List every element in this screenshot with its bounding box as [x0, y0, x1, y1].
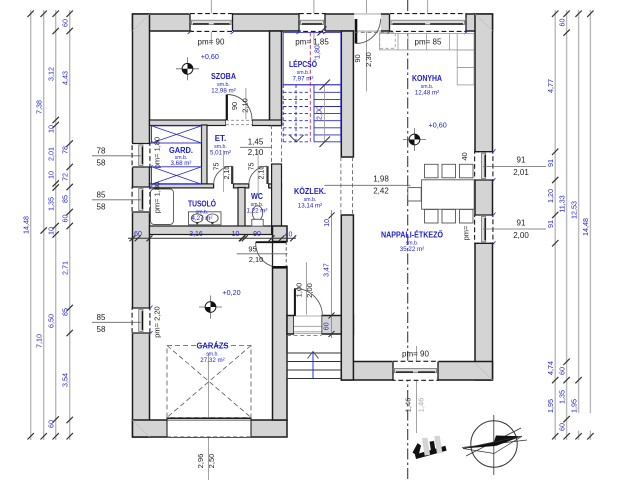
svg-text:2,01: 2,01: [513, 168, 529, 177]
svg-text:2,00: 2,00: [305, 283, 314, 298]
svg-text:60: 60: [61, 19, 70, 27]
svg-text:pm= 90: pm= 90: [402, 350, 429, 359]
svg-text:TUSOLÓ: TUSOLÓ: [188, 200, 216, 209]
svg-text:60: 60: [134, 231, 142, 238]
svg-text:91: 91: [517, 219, 526, 228]
svg-text:2,10: 2,10: [241, 98, 250, 113]
svg-text:12,53: 12,53: [569, 201, 578, 219]
svg-text:10: 10: [47, 171, 56, 179]
svg-text:7,38: 7,38: [35, 100, 44, 114]
svg-text:pm= 90: pm= 90: [198, 38, 225, 47]
svg-text:10: 10: [47, 227, 56, 235]
svg-text:1,35: 1,35: [47, 197, 56, 211]
svg-text:4,77: 4,77: [546, 79, 555, 93]
svg-text:3,16: 3,16: [189, 231, 203, 238]
svg-text:pm= 1,80: pm= 1,80: [153, 137, 162, 168]
svg-text:75: 75: [214, 163, 221, 171]
svg-text:60: 60: [323, 322, 330, 330]
svg-text:NAPPALI-ÉTKEZŐ: NAPPALI-ÉTKEZŐ: [381, 231, 443, 240]
svg-text:+0,20: +0,20: [222, 288, 240, 297]
svg-text:3,47: 3,47: [323, 263, 330, 277]
svg-text:1,45: 1,45: [248, 137, 264, 146]
svg-text:4,43: 4,43: [61, 71, 70, 85]
svg-text:GARÁZS: GARÁZS: [197, 342, 230, 351]
svg-text:2,50: 2,50: [207, 454, 216, 469]
svg-text:2,00: 2,00: [315, 106, 324, 120]
svg-text:11,33: 11,33: [557, 195, 566, 212]
svg-text:91: 91: [546, 220, 555, 228]
svg-text:85: 85: [61, 308, 70, 316]
svg-text:12,48 m²: 12,48 m²: [415, 90, 439, 97]
svg-text:1,00: 1,00: [295, 283, 304, 298]
svg-text:4,74: 4,74: [546, 361, 555, 375]
svg-text:35,22 m²: 35,22 m²: [400, 246, 424, 253]
svg-text:12,98 m²: 12,98 m²: [211, 88, 235, 95]
svg-text:1,80: 1,80: [315, 45, 322, 59]
svg-text:1,95: 1,95: [546, 399, 555, 413]
svg-text:3,68 m²: 3,68 m²: [171, 160, 192, 167]
svg-text:1,46: 1,46: [417, 398, 426, 413]
svg-text:2,42: 2,42: [373, 187, 389, 196]
svg-text:58: 58: [97, 325, 106, 334]
svg-text:2,71: 2,71: [61, 261, 70, 275]
svg-text:91: 91: [517, 156, 526, 165]
svg-text:40: 40: [460, 152, 469, 160]
svg-text:14,48: 14,48: [581, 218, 590, 236]
svg-text:10: 10: [232, 231, 240, 238]
svg-text:1,98: 1,98: [373, 174, 389, 183]
svg-text:pm= 2,20: pm= 2,20: [153, 306, 162, 337]
svg-text:27,32 m²: 27,32 m²: [200, 357, 224, 364]
svg-text:58: 58: [97, 159, 106, 168]
svg-text:2,00: 2,00: [513, 231, 529, 240]
svg-text:60: 60: [557, 367, 566, 375]
svg-text:1,95: 1,95: [569, 399, 578, 413]
svg-text:+0,60: +0,60: [429, 121, 447, 130]
svg-text:10: 10: [47, 125, 56, 133]
svg-text:60: 60: [47, 420, 56, 428]
svg-text:1,35: 1,35: [557, 390, 566, 404]
svg-text:78: 78: [97, 147, 106, 156]
svg-text:2,10: 2,10: [249, 255, 264, 264]
svg-text:90: 90: [353, 54, 362, 62]
svg-text:2,96: 2,96: [196, 454, 205, 469]
svg-text:1,20: 1,20: [546, 189, 555, 203]
svg-text:KONYHA: KONYHA: [412, 74, 442, 83]
svg-text:SZOBA: SZOBA: [211, 72, 236, 81]
svg-text:85: 85: [61, 195, 70, 203]
svg-text:60: 60: [61, 215, 70, 223]
svg-text:KÖZLEK.: KÖZLEK.: [294, 187, 326, 196]
svg-text:85: 85: [97, 313, 106, 322]
svg-text:1,46: 1,46: [404, 398, 413, 413]
svg-text:2,10: 2,10: [259, 166, 266, 180]
svg-text:7,97 m²: 7,97 m²: [293, 76, 314, 83]
svg-text:5,01 m²: 5,01 m²: [210, 150, 231, 157]
svg-text:75: 75: [249, 163, 256, 171]
svg-text:3,54: 3,54: [61, 373, 70, 387]
svg-text:14,48: 14,48: [22, 216, 31, 234]
svg-text:4,27 m²: 4,27 m²: [192, 215, 213, 222]
svg-text:GARD.: GARD.: [169, 146, 193, 155]
svg-text:6,50: 6,50: [47, 314, 56, 328]
svg-text:1,22 m²: 1,22 m²: [247, 208, 268, 215]
svg-text:7,10: 7,10: [35, 334, 44, 348]
svg-text:WC: WC: [251, 192, 263, 201]
svg-text:pm= 85: pm= 85: [415, 38, 442, 47]
svg-text:ET.: ET.: [215, 134, 227, 143]
svg-text:72: 72: [61, 173, 70, 181]
svg-text:LÉPCSŐ: LÉPCSŐ: [289, 60, 317, 69]
svg-text:90: 90: [253, 231, 261, 238]
svg-text:2,30: 2,30: [364, 52, 373, 67]
svg-text:3,12: 3,12: [47, 67, 56, 81]
svg-text:90: 90: [230, 102, 239, 110]
svg-text:pm= 1,80: pm= 1,80: [153, 182, 162, 213]
svg-text:95: 95: [248, 245, 256, 254]
svg-text:78: 78: [61, 146, 70, 154]
svg-text:2,10: 2,10: [224, 166, 231, 180]
svg-text:60: 60: [557, 19, 566, 27]
svg-text:pm= 1,85: pm= 1,85: [295, 38, 329, 47]
svg-text:13,14 m²: 13,14 m²: [298, 203, 322, 210]
svg-text:85: 85: [97, 191, 106, 200]
svg-text:60: 60: [557, 423, 566, 431]
svg-text:+0,60: +0,60: [201, 52, 219, 61]
svg-text:pm=: pm=: [462, 225, 471, 240]
svg-text:2,10: 2,10: [248, 148, 264, 157]
svg-text:40: 40: [285, 232, 293, 239]
svg-text:91: 91: [546, 159, 555, 167]
svg-text:58: 58: [97, 203, 106, 212]
svg-text:10: 10: [324, 219, 331, 227]
svg-text:2,01: 2,01: [47, 147, 56, 161]
